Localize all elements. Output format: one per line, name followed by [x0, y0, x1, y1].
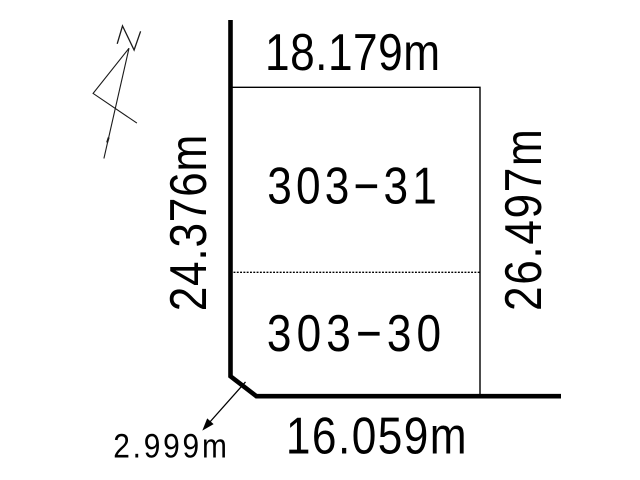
svg-text:24.376m: 24.376m — [159, 135, 217, 312]
svg-text:18.179m: 18.179m — [265, 23, 440, 81]
svg-text:26.497m: 26.497m — [494, 129, 552, 311]
svg-text:16.059m: 16.059m — [286, 407, 467, 465]
